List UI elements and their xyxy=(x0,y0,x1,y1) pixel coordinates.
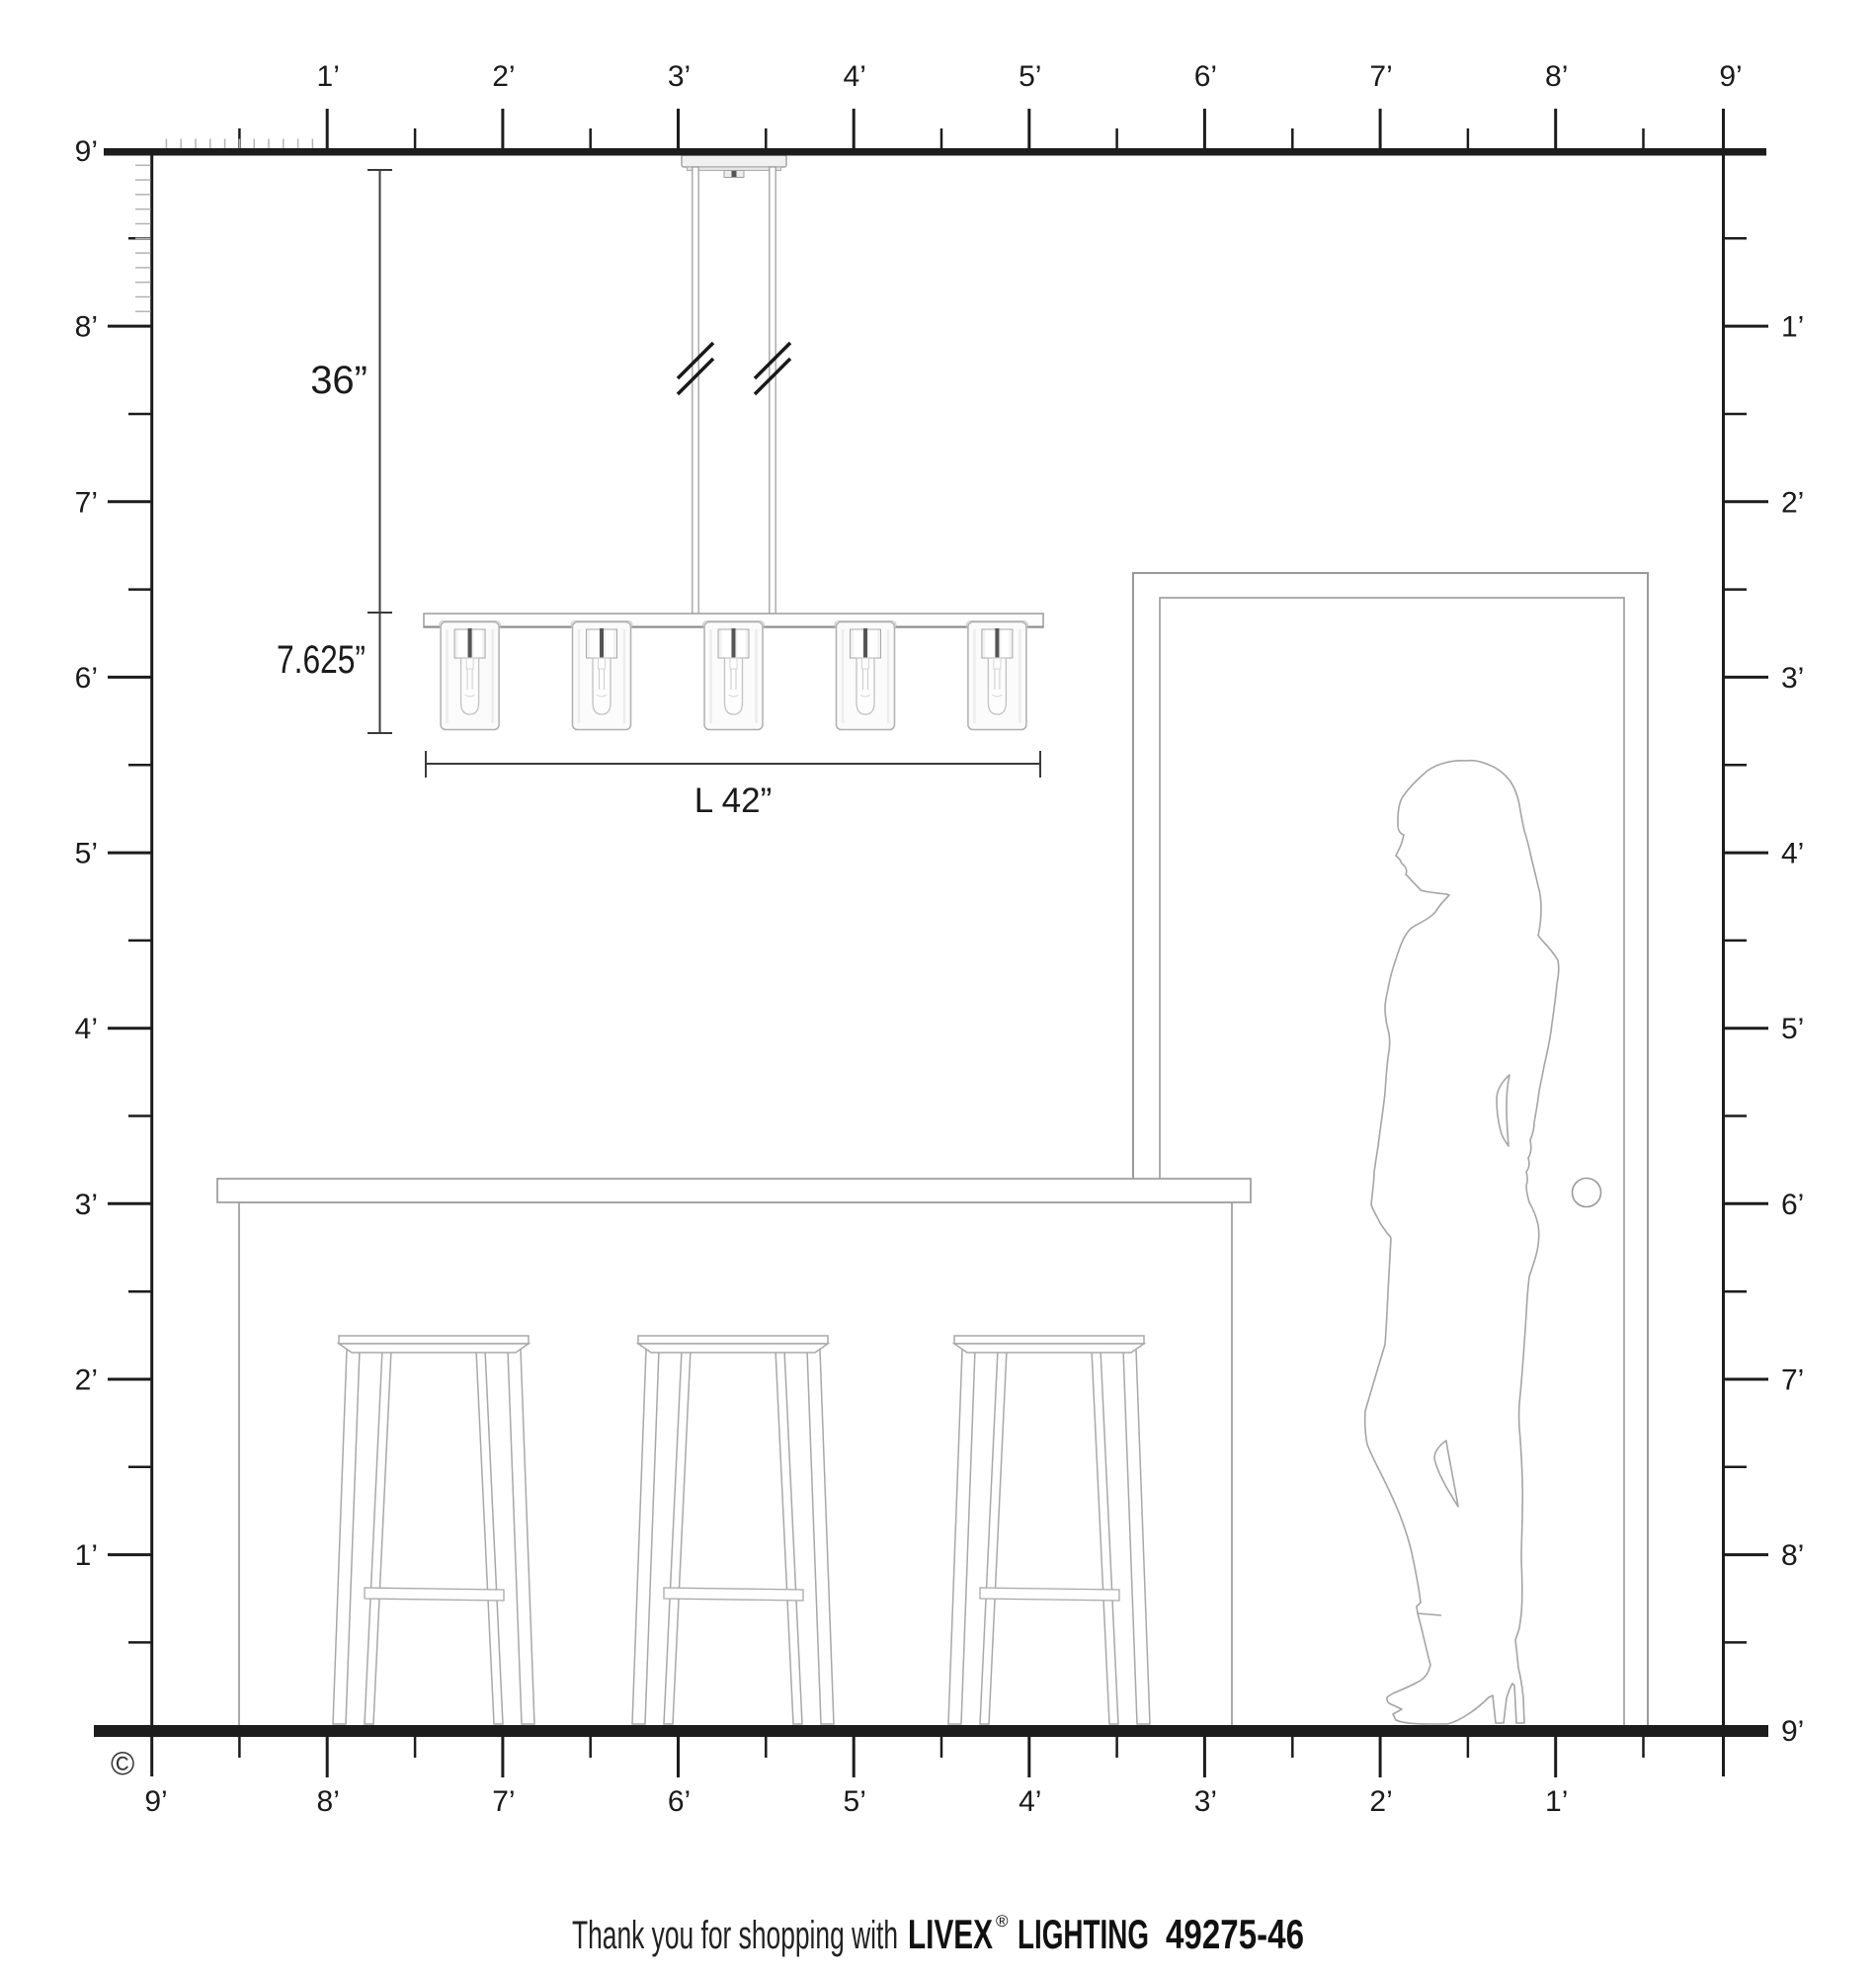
svg-text:6’: 6’ xyxy=(75,662,98,695)
svg-text:8’: 8’ xyxy=(1545,60,1568,93)
svg-text:9’: 9’ xyxy=(144,1785,167,1818)
svg-text:3’: 3’ xyxy=(1194,1785,1217,1818)
svg-text:3’: 3’ xyxy=(75,1189,98,1221)
svg-text:7’: 7’ xyxy=(1369,60,1392,93)
svg-text:2’: 2’ xyxy=(1781,486,1804,519)
svg-text:5’: 5’ xyxy=(844,1785,866,1818)
svg-text:©: © xyxy=(111,1745,134,1781)
svg-text:5’: 5’ xyxy=(75,838,98,870)
svg-text:2’: 2’ xyxy=(75,1364,98,1397)
svg-text:2’: 2’ xyxy=(1369,1785,1392,1818)
svg-text:49275-46: 49275-46 xyxy=(1166,1911,1304,1957)
svg-text:L 42”: L 42” xyxy=(694,782,772,820)
svg-text:6’: 6’ xyxy=(668,1785,691,1818)
svg-text:5’: 5’ xyxy=(1781,1013,1804,1045)
svg-text:1’: 1’ xyxy=(317,60,340,93)
svg-text:6’: 6’ xyxy=(1194,60,1217,93)
svg-text:5’: 5’ xyxy=(1019,60,1041,93)
svg-text:1’: 1’ xyxy=(75,1539,98,1572)
svg-text:4’: 4’ xyxy=(1781,838,1804,870)
svg-text:9’: 9’ xyxy=(75,135,98,168)
svg-text:6’: 6’ xyxy=(1781,1189,1804,1221)
svg-text:4’: 4’ xyxy=(75,1013,98,1045)
svg-text:1’: 1’ xyxy=(1545,1785,1568,1818)
svg-text:7’: 7’ xyxy=(75,486,98,519)
svg-text:LIVEX: LIVEX xyxy=(908,1911,993,1957)
svg-text:7.625”: 7.625” xyxy=(277,638,366,682)
svg-text:7’: 7’ xyxy=(492,1785,515,1818)
svg-text:8’: 8’ xyxy=(75,311,98,344)
svg-text:8’: 8’ xyxy=(1781,1539,1804,1572)
svg-text:9’: 9’ xyxy=(1781,1715,1804,1748)
svg-text:4’: 4’ xyxy=(1019,1785,1041,1818)
svg-text:36”: 36” xyxy=(310,359,367,402)
svg-text:4’: 4’ xyxy=(844,60,866,93)
svg-text:®: ® xyxy=(996,1912,1009,1931)
svg-text:9’: 9’ xyxy=(1719,60,1742,93)
svg-text:Thank you for shopping with: Thank you for shopping with xyxy=(572,1914,898,1957)
svg-text:LIGHTING: LIGHTING xyxy=(1018,1911,1149,1957)
svg-text:1’: 1’ xyxy=(1781,311,1804,344)
svg-text:2’: 2’ xyxy=(492,60,515,93)
svg-text:8’: 8’ xyxy=(317,1785,340,1818)
svg-text:7’: 7’ xyxy=(1781,1364,1804,1397)
svg-text:3’: 3’ xyxy=(668,60,691,93)
svg-text:3’: 3’ xyxy=(1781,662,1804,695)
